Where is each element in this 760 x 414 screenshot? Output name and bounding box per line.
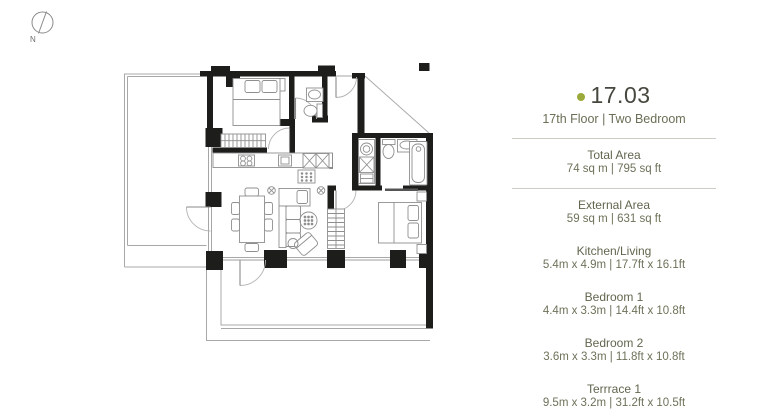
kitchen-counter [213,153,333,168]
spec-label: Total Area [512,148,716,162]
spec-label: Kitchen/Living [512,244,716,258]
spec-value: 9.5m x 3.2m | 31.2ft x 10.5ft [512,396,716,410]
compass-north-label: N [30,35,36,44]
spec-value: 5.4m x 4.9m | 17.7ft x 16.1ft [512,258,716,272]
dining-table [232,188,273,252]
unit-floor-type: 17th Floor | Two Bedroom [512,112,716,126]
wc-fixtures [304,88,323,118]
spec-label: Bedroom 2 [512,336,716,350]
spec-list: External Area 59 sq m | 631 sq ft Kitche… [512,189,716,414]
north-compass-icon: N [30,12,53,45]
unit-spec-panel: 17.03 17th Floor | Two Bedroom Total Are… [512,82,716,414]
page: N [0,0,760,414]
spec-kitchen-living: Kitchen/Living 5.4m x 4.9m | 17.7ft x 16… [512,235,716,272]
spec-total-area: Total Area 74 sq m | 795 sq ft [512,148,716,176]
bedroom1-bed [233,79,285,126]
utility-closet [359,140,375,184]
spec-external-area: External Area 59 sq m | 631 sq ft [512,189,716,226]
bedroom1-wardrobe [221,134,266,148]
spec-label: External Area [512,198,716,212]
spec-value: 74 sq m | 795 sq ft [512,162,716,176]
unit-title-row: 17.03 [512,82,716,109]
spec-value: 3.6m x 3.3m | 11.8ft x 10.8ft [512,350,716,364]
unit-number: 17.03 [590,82,650,109]
bedroom2-wardrobe [328,209,345,249]
bathroom-fixtures [383,140,428,186]
spec-label: Bedroom 1 [512,290,716,304]
coffee-table [300,212,317,229]
bedroom2-bed [379,192,427,254]
spec-bedroom-1: Bedroom 1 4.4m x 3.3m | 14.4ft x 10.8ft [512,281,716,318]
availability-dot-icon [577,93,585,101]
spec-terrace-1: Terrrace 1 9.5m x 3.2m | 31.2ft x 10.5ft [512,373,716,410]
spec-label: Terrrace 1 [512,382,716,396]
divider [512,138,716,139]
spec-bedroom-2: Bedroom 2 3.6m x 3.3m | 11.8ft x 10.8ft [512,327,716,364]
kitchen-floor-grate [298,170,315,183]
spec-value: 4.4m x 3.3m | 14.4ft x 10.8ft [512,304,716,318]
bathroom-sliding-door [385,189,418,192]
spec-value: 59 sq m | 631 sq ft [512,212,716,226]
